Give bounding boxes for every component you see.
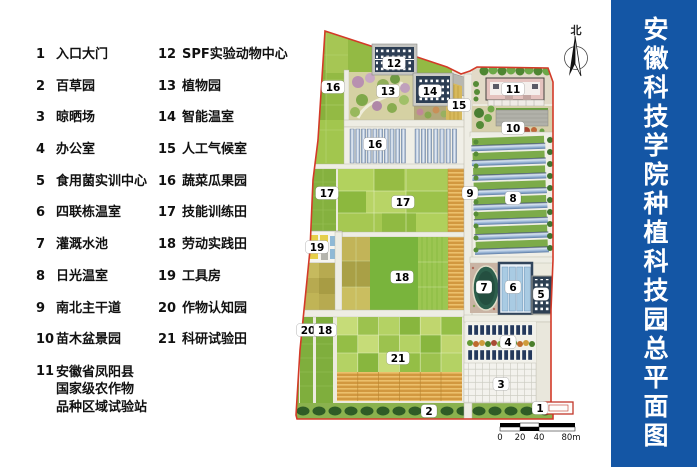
map-region-label: 14 bbox=[419, 85, 442, 98]
map-region-label: 18 bbox=[391, 271, 414, 284]
map-region-label: 17 bbox=[392, 196, 415, 209]
map-region-label: 8 bbox=[505, 192, 521, 205]
map-region-label: 16 bbox=[322, 81, 345, 94]
svg-text:8: 8 bbox=[509, 193, 516, 205]
svg-text:10: 10 bbox=[506, 123, 521, 135]
svg-text:5: 5 bbox=[537, 289, 544, 301]
svg-text:6: 6 bbox=[509, 282, 516, 294]
svg-text:1: 1 bbox=[536, 403, 543, 415]
olive-patches bbox=[305, 263, 335, 310]
svg-text:17: 17 bbox=[320, 188, 335, 200]
map-region-label: 11 bbox=[502, 83, 525, 96]
map-region-label: 3 bbox=[493, 378, 509, 391]
map-region-label: 2 bbox=[421, 405, 437, 418]
scale-tick-label: 0 bbox=[497, 433, 502, 443]
svg-text:9: 9 bbox=[466, 188, 473, 200]
map-region-label: 4 bbox=[500, 336, 516, 349]
map-region-label: 12 bbox=[383, 57, 406, 70]
svg-text:11: 11 bbox=[506, 84, 521, 96]
map-region-label: 10 bbox=[502, 122, 525, 135]
map-region-label: 5 bbox=[533, 288, 549, 301]
svg-text:2: 2 bbox=[425, 406, 432, 418]
svg-text:14: 14 bbox=[423, 86, 438, 98]
map-region-label: 16 bbox=[364, 138, 387, 151]
map-region-label: 7 bbox=[476, 281, 492, 294]
svg-text:15: 15 bbox=[452, 100, 467, 112]
north-label: 北 bbox=[571, 23, 582, 37]
title-bar: 安徽科技学院种植科技园总平面图 bbox=[611, 0, 697, 467]
map-region-label: 15 bbox=[448, 99, 471, 112]
svg-text:3: 3 bbox=[497, 379, 504, 391]
map-region-label: 21 bbox=[387, 352, 410, 365]
region-1-entrance-gate bbox=[544, 402, 573, 414]
region-16-greenhouse-rows bbox=[344, 127, 466, 166]
svg-text:4: 4 bbox=[504, 337, 511, 349]
svg-text:12: 12 bbox=[387, 58, 402, 70]
svg-text:16: 16 bbox=[326, 82, 341, 94]
scale-tick-label: 40 bbox=[534, 433, 545, 443]
svg-text:13: 13 bbox=[381, 86, 396, 98]
site-plan-page: 1入口大门2百草园3晾晒场4办公室5食用菌实训中心6四联栋温室7灌溉水池8日光温… bbox=[0, 0, 700, 467]
svg-text:20: 20 bbox=[301, 325, 316, 337]
north-arrow-icon: 北 bbox=[565, 23, 588, 76]
svg-text:7: 7 bbox=[480, 282, 487, 294]
svg-text:16: 16 bbox=[368, 139, 383, 151]
map-region-label: 19 bbox=[306, 241, 329, 254]
region-17-training-fields bbox=[311, 169, 448, 232]
page-title: 安徽科技学院种植科技园总平面图 bbox=[611, 16, 697, 451]
svg-text:18: 18 bbox=[318, 325, 333, 337]
map-region-label: 17 bbox=[316, 187, 339, 200]
map-region-label: 18 bbox=[314, 324, 337, 337]
flower-beds bbox=[414, 104, 448, 122]
svg-text:21: 21 bbox=[391, 353, 406, 365]
svg-text:18: 18 bbox=[395, 272, 410, 284]
scale-bar: 0204080m bbox=[497, 423, 580, 443]
map-region-label: 9 bbox=[462, 187, 478, 200]
scale-tick-label: 80m bbox=[561, 433, 580, 443]
svg-text:19: 19 bbox=[310, 242, 325, 254]
map-region-label: 1 bbox=[532, 402, 548, 415]
map-region-label: 13 bbox=[377, 85, 400, 98]
crop-strip bbox=[448, 169, 464, 312]
scale-tick-label: 20 bbox=[515, 433, 526, 443]
map-region-label: 6 bbox=[505, 281, 521, 294]
svg-text:17: 17 bbox=[396, 197, 411, 209]
site-plan-map: 北 0204080m 16121314151110161798171918765… bbox=[0, 0, 700, 467]
